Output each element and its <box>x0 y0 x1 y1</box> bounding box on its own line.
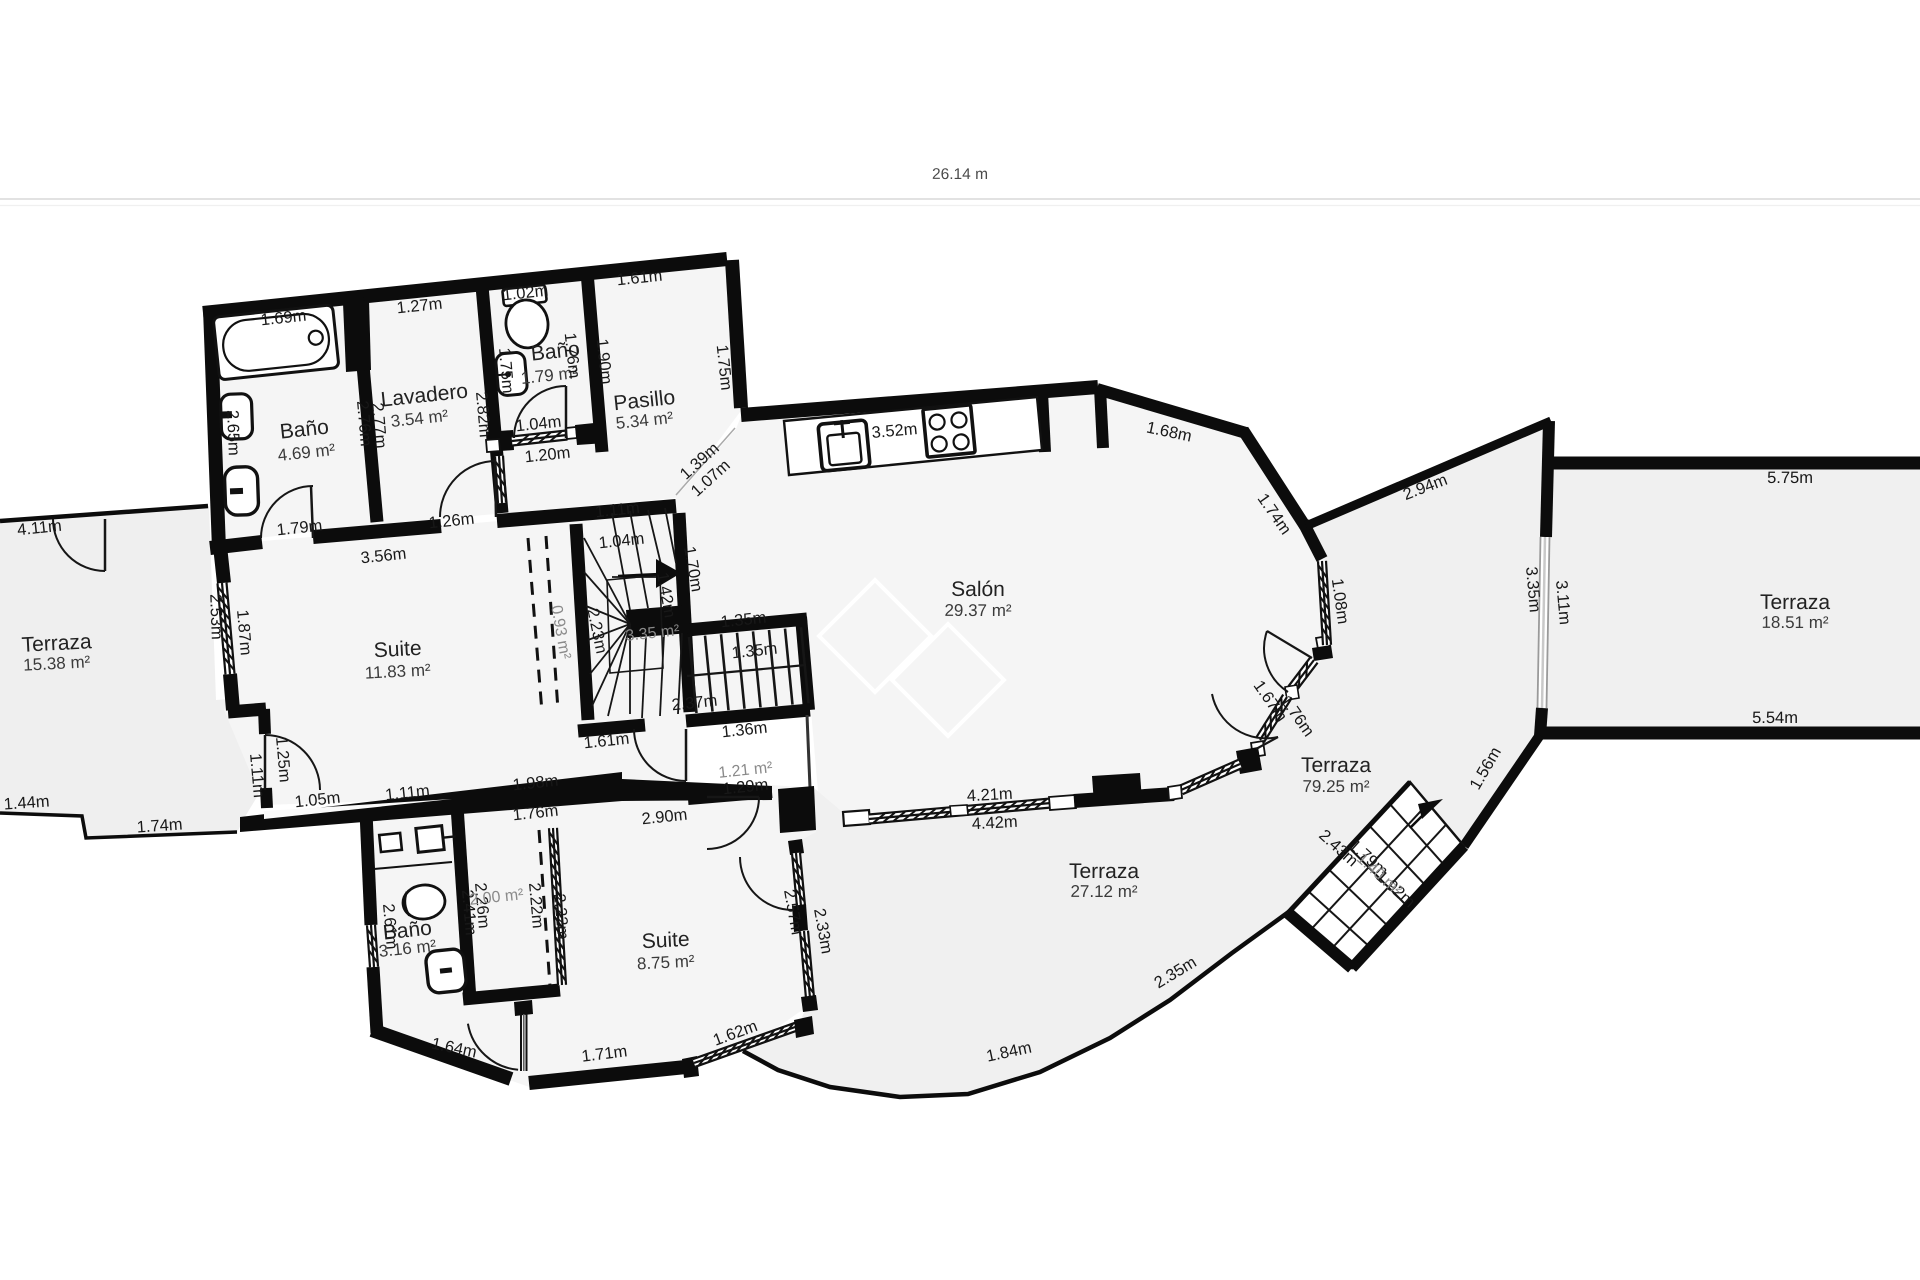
svg-text:1.44m: 1.44m <box>3 792 50 813</box>
svg-text:Suite: Suite <box>641 928 690 953</box>
svg-text:15.38 m²: 15.38 m² <box>23 652 91 675</box>
svg-text:11.83 m²: 11.83 m² <box>364 660 431 682</box>
svg-text:8.75 m²: 8.75 m² <box>636 951 695 973</box>
svg-text:27.12 m²: 27.12 m² <box>1070 882 1137 901</box>
svg-text:5.54m: 5.54m <box>1752 709 1798 727</box>
svg-text:Suite: Suite <box>373 637 422 662</box>
svg-text:1.74m: 1.74m <box>136 815 183 836</box>
svg-text:2.65m: 2.65m <box>223 410 243 456</box>
svg-text:Terraza: Terraza <box>1301 754 1371 777</box>
svg-text:Salón: Salón <box>951 578 1005 601</box>
svg-text:4.42m: 4.42m <box>971 813 1018 833</box>
svg-text:26.14 m: 26.14 m <box>932 166 988 183</box>
svg-text:Terraza: Terraza <box>1069 860 1139 883</box>
svg-text:4.21m: 4.21m <box>966 785 1013 805</box>
svg-text:79.25 m²: 79.25 m² <box>1302 777 1369 796</box>
svg-text:29.37 m²: 29.37 m² <box>944 601 1011 620</box>
svg-text:5.75m: 5.75m <box>1767 469 1813 487</box>
svg-text:2.53m: 2.53m <box>206 594 226 640</box>
svg-text:Terraza: Terraza <box>1760 591 1830 614</box>
svg-text:18.51 m²: 18.51 m² <box>1761 613 1828 632</box>
